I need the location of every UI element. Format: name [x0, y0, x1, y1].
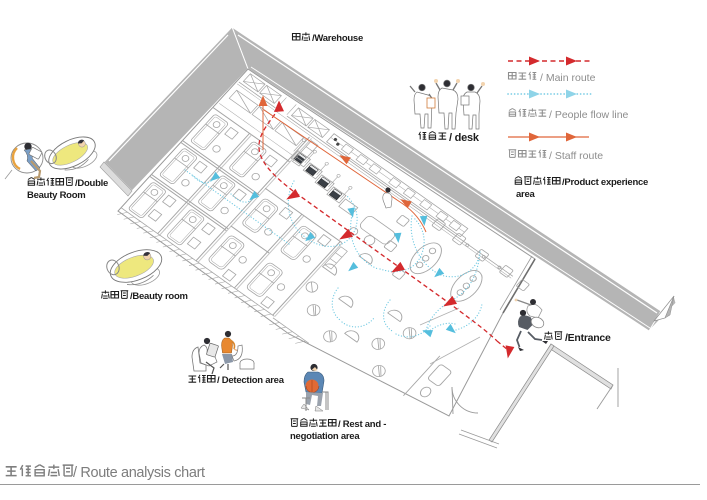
svg-text:/ People flow line: / People flow line — [549, 109, 629, 121]
svg-text:Beauty Room: Beauty Room — [27, 190, 85, 201]
svg-text:/ Rest and -: / Rest and - — [338, 419, 386, 430]
svg-text:/ desk: / desk — [449, 132, 480, 144]
svg-text:/Warehouse: /Warehouse — [312, 33, 363, 44]
svg-text:/ Route analysis chart: / Route analysis chart — [73, 465, 205, 481]
svg-text:area: area — [516, 189, 536, 200]
svg-text:/Double: /Double — [75, 178, 108, 189]
svg-text:/Entrance: /Entrance — [565, 332, 611, 344]
svg-text:/ Detection area: / Detection area — [217, 375, 285, 386]
svg-text:negotiation area: negotiation area — [290, 431, 360, 442]
svg-text:/Beauty room: /Beauty room — [130, 291, 188, 302]
svg-text:/ Main route: / Main route — [540, 72, 596, 84]
svg-text:/Product experience: /Product experience — [562, 177, 648, 188]
svg-text:/ Staff route: / Staff route — [549, 150, 603, 162]
